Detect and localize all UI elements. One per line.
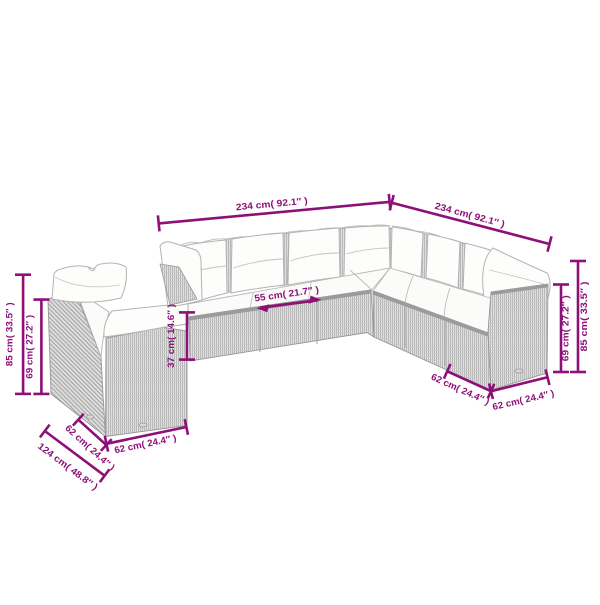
svg-text:85 cm( 33.5″ ): 85 cm( 33.5″ ) bbox=[578, 282, 589, 352]
svg-text:69 cm( 27.2″ ): 69 cm( 27.2″ ) bbox=[24, 315, 35, 379]
svg-text:85 cm( 33.5″ ): 85 cm( 33.5″ ) bbox=[4, 302, 15, 366]
svg-text:37 cm( 14.6″ ): 37 cm( 14.6″ ) bbox=[165, 304, 176, 368]
svg-text:69 cm( 27.2″ ): 69 cm( 27.2″ ) bbox=[560, 295, 571, 361]
